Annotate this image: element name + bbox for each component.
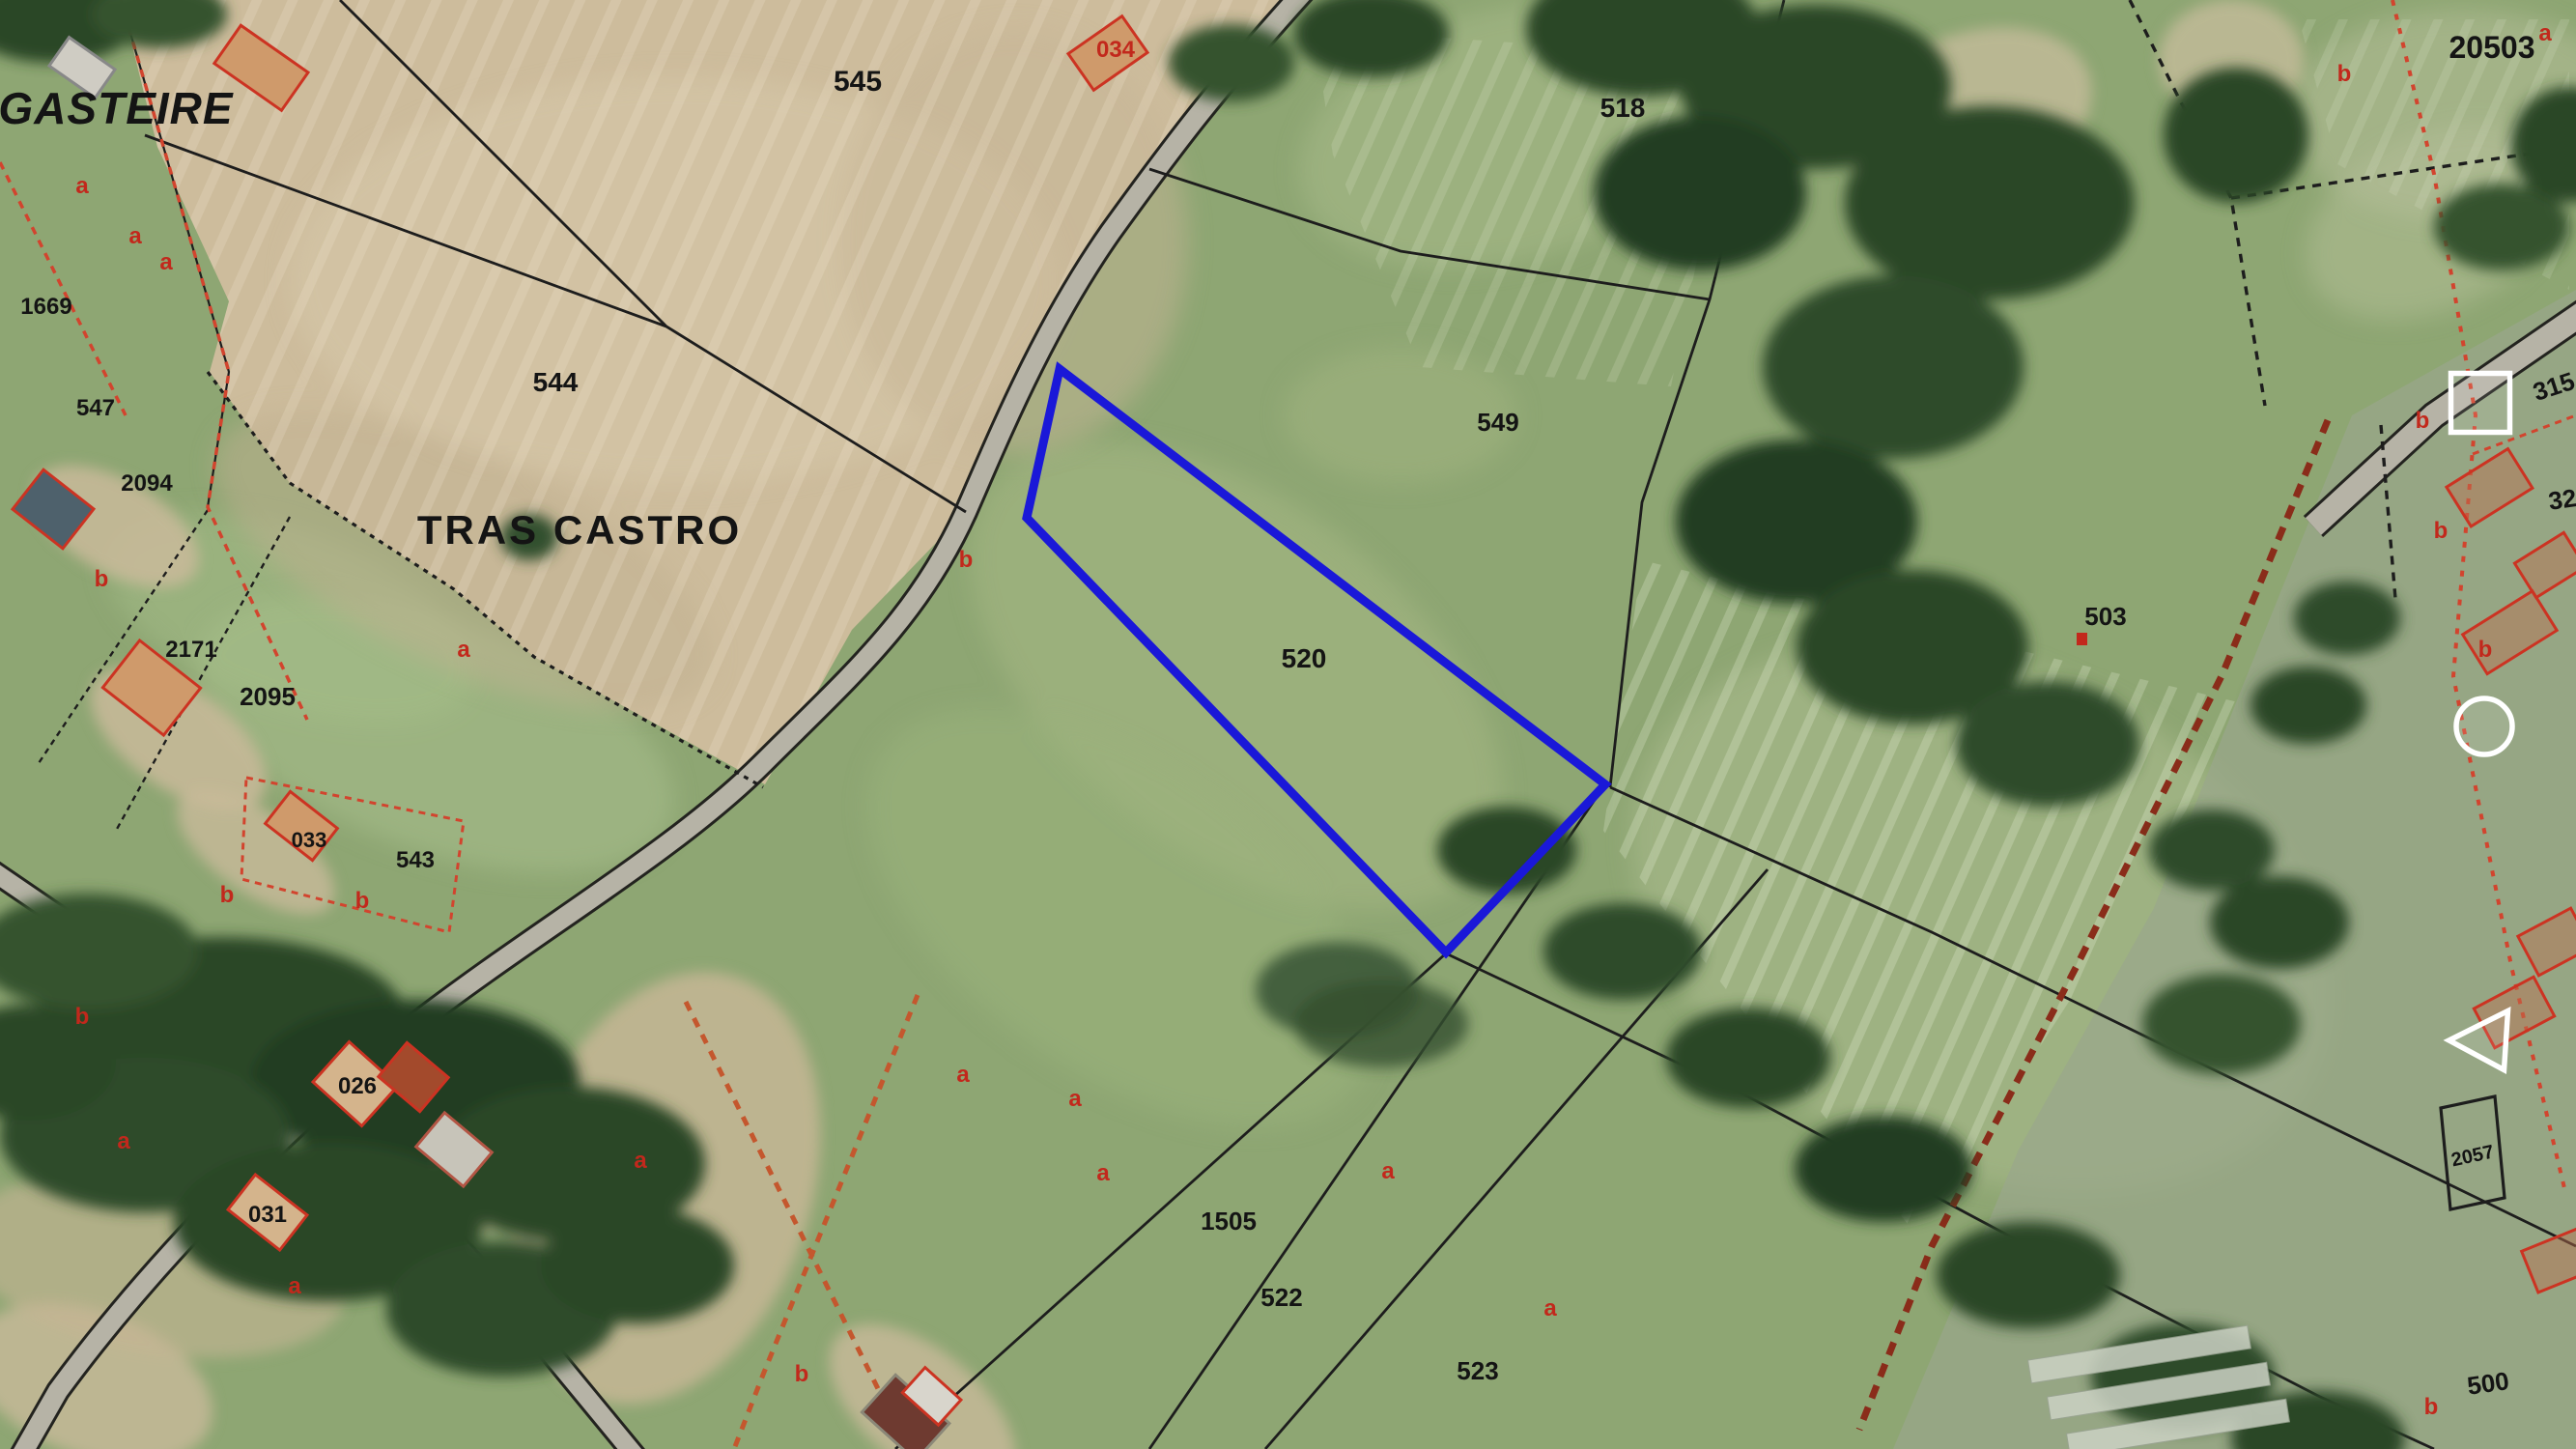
red-dot-marker	[2077, 633, 2087, 645]
aerial-map[interactable]	[0, 0, 2576, 1449]
circle-marker[interactable]	[2456, 698, 2512, 754]
square-marker[interactable]	[2451, 374, 2510, 433]
map-viewport[interactable]: GASTEIRETRAS CASTRO545544518549520503205…	[0, 0, 2576, 1449]
